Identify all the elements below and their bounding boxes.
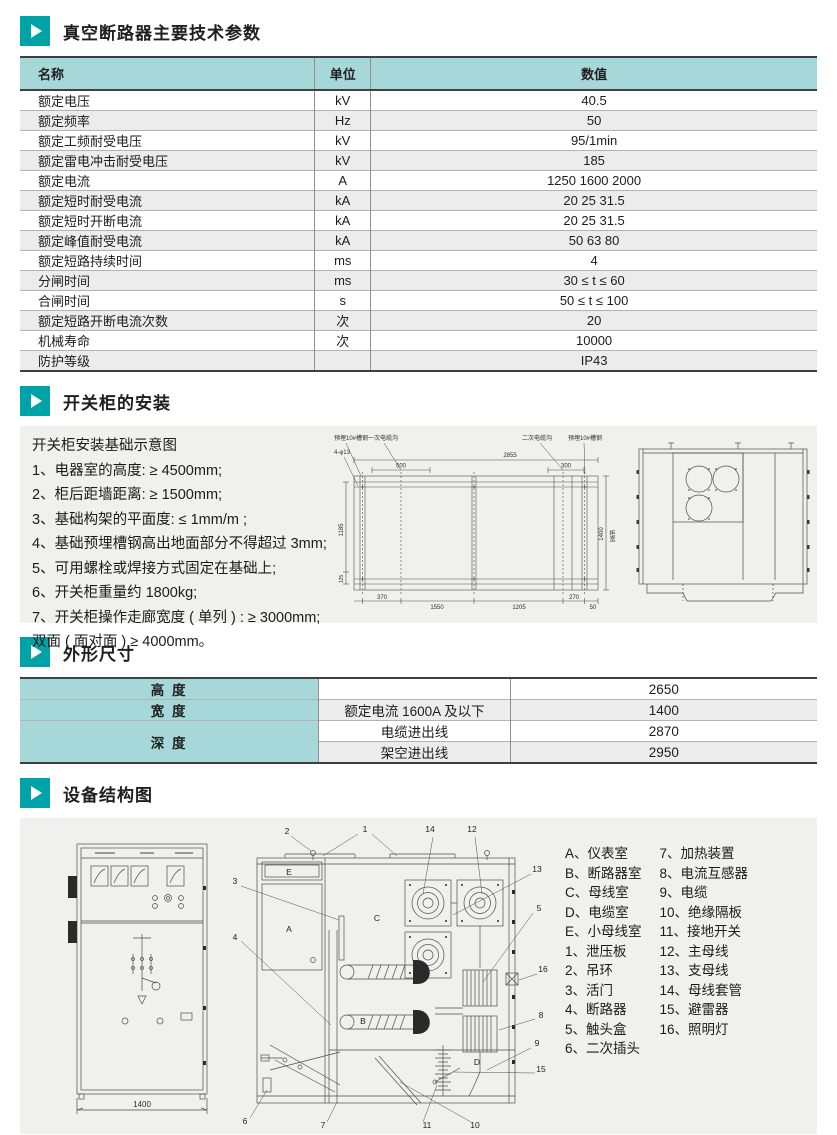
note-line: 双面 ( 面对面 ) ≥ 4000mm。: [32, 630, 332, 655]
callout-6: 6: [243, 1116, 248, 1126]
param-name: 额定短路开断电流次数: [20, 311, 315, 331]
table-row: 机械寿命次10000: [20, 331, 817, 351]
compartment-d-label: D: [474, 1057, 480, 1067]
legend-item: B、断路器室: [565, 864, 642, 884]
callout-13: 13: [532, 864, 542, 874]
legend-item: E、小母线室: [565, 922, 642, 942]
table-row: 额定峰值耐受电流kA50 63 80: [20, 231, 817, 251]
compartment-c-label: C: [374, 913, 380, 923]
section-header-params: 真空断路器主要技术参数: [20, 0, 817, 46]
params-table-body: 额定电压kV40.5额定频率Hz50额定工频耐受电压kV95/1min额定雷电冲…: [20, 90, 817, 371]
compartment-a-label: A: [286, 924, 292, 934]
legend-item: C、母线室: [565, 883, 642, 903]
plan-dim-b4: 270: [569, 595, 580, 601]
plan-dim-b5: 50: [590, 605, 597, 611]
plan-dim-primary: 500: [396, 464, 407, 470]
dim-width-label: 宽 度: [20, 700, 319, 721]
param-unit: ms: [315, 251, 371, 271]
callout-11: 11: [423, 1120, 432, 1130]
param-name: 防护等级: [20, 351, 315, 372]
table-row: 额定短路持续时间ms4: [20, 251, 817, 271]
note-line: 2、柜后距墙距离: ≥ 1500mm;: [32, 483, 332, 508]
dim-depth-cable-value: 2870: [510, 721, 817, 742]
plan-dim-left: 1185: [339, 523, 345, 537]
col-header-name: 名称: [20, 57, 315, 90]
plan-dim-b3: 1205: [512, 605, 526, 611]
param-unit: s: [315, 291, 371, 311]
param-value: 20: [371, 311, 817, 331]
param-name: 额定频率: [20, 111, 315, 131]
section-header-installation: 开关柜的安装: [20, 372, 817, 416]
dim-depth-cable-label: 电缆进出线: [319, 721, 510, 742]
note-line: 7、开关柜操作走廊宽度 ( 单列 ) : ≥ 3000mm;: [32, 606, 332, 631]
callout-16: 16: [538, 964, 548, 974]
param-name: 额定电流: [20, 171, 315, 191]
note-line: 1、电器室的高度: ≥ 4500mm;: [32, 459, 332, 484]
param-unit: kA: [315, 211, 371, 231]
installation-caption: 开关柜安装基础示意图: [32, 434, 332, 459]
legend-item: 6、二次插头: [565, 1039, 642, 1059]
param-name: 机械寿命: [20, 331, 315, 351]
param-value: 10000: [371, 331, 817, 351]
dim-width-qualifier: 额定电流 1600A 及以下: [319, 700, 510, 721]
section-title-installation: 开关柜的安装: [63, 389, 171, 414]
legend-item: 4、断路器: [565, 1000, 642, 1020]
table-row: 额定短时耐受电流kA20 25 31.5: [20, 191, 817, 211]
table-row: 额定电压kV40.5: [20, 90, 817, 111]
plan-label-channel-right: 预埋10#槽钢: [568, 434, 602, 442]
structure-panel: 1400: [20, 818, 817, 1134]
front-view-width-dim: 1400: [133, 1100, 151, 1109]
structure-legend: A、仪表室B、断路器室C、母线室D、电缆室E、小母线室1、泄压板2、吊环3、活门…: [565, 844, 748, 1059]
section-arrow-icon: [20, 778, 50, 808]
legend-item: 8、电流互感器: [660, 864, 749, 884]
param-value: 50 ≤ t ≤ 100: [371, 291, 817, 311]
plan-dim-left-small: 125: [339, 575, 345, 584]
dim-depth-label: 深 度: [20, 721, 319, 764]
param-unit: ms: [315, 271, 371, 291]
callout-4: 4: [233, 932, 238, 942]
callout-1: 1: [363, 824, 368, 834]
foundation-plan-diagram: 预埋10#槽钢 一次电缆沟 4-φ13 二次电缆沟 预埋10#槽钢 2855 5…: [332, 430, 617, 620]
table-row: 额定工频耐受电压kV95/1min: [20, 131, 817, 151]
col-header-value: 数值: [371, 57, 817, 90]
installation-notes: 开关柜安装基础示意图 1、电器室的高度: ≥ 4500mm;2、柜后距墙距离: …: [32, 434, 332, 655]
param-value: 30 ≤ t ≤ 60: [371, 271, 817, 291]
compartment-b-label: B: [360, 1016, 366, 1026]
cabinet-front-view-diagram: 1400: [55, 826, 230, 1126]
dim-width-value: 1400: [510, 700, 817, 721]
param-unit: kV: [315, 131, 371, 151]
param-value: 1250 1600 2000: [371, 171, 817, 191]
section-title-structure: 设备结构图: [63, 781, 153, 806]
param-name: 额定短时耐受电流: [20, 191, 315, 211]
dim-height-label: 高 度: [20, 678, 319, 700]
legend-item: 13、支母线: [660, 961, 749, 981]
section-arrow-icon: [20, 386, 50, 416]
legend-item: D、电缆室: [565, 903, 642, 923]
table-row: 防护等级IP43: [20, 351, 817, 372]
dim-height-value: 2650: [510, 678, 817, 700]
legend-col-2: 7、加热装置8、电流互感器9、电缆10、绝缘隔板11、接地开关12、主母线13、…: [660, 844, 749, 1059]
param-name: 分闸时间: [20, 271, 315, 291]
section-title-params: 真空断路器主要技术参数: [63, 19, 261, 44]
params-header-row: 名称 单位 数值: [20, 57, 817, 90]
param-value: 95/1min: [371, 131, 817, 151]
param-name: 合闸时间: [20, 291, 315, 311]
param-name: 额定电压: [20, 90, 315, 111]
section-header-structure: 设备结构图: [20, 764, 817, 808]
plan-label-cabinet-width: 柜宽: [608, 529, 615, 543]
table-row: 合闸时间s50 ≤ t ≤ 100: [20, 291, 817, 311]
legend-item: 16、照明灯: [660, 1020, 749, 1040]
callout-7: 7: [321, 1120, 326, 1130]
legend-item: 5、触头盒: [565, 1020, 642, 1040]
dim-depth-overhead-label: 架空进出线: [319, 742, 510, 764]
legend-item: 3、活门: [565, 981, 642, 1001]
play-triangle-icon: [31, 394, 42, 408]
table-row: 额定短路开断电流次数次20: [20, 311, 817, 331]
param-unit: A: [315, 171, 371, 191]
param-unit: [315, 351, 371, 372]
param-value: 50 63 80: [371, 231, 817, 251]
param-value: 40.5: [371, 90, 817, 111]
param-unit: kV: [315, 90, 371, 111]
table-row: 额定短时开断电流kA20 25 31.5: [20, 211, 817, 231]
legend-item: 11、接地开关: [660, 922, 749, 942]
param-name: 额定工频耐受电压: [20, 131, 315, 151]
plan-label-channel-left: 预埋10#槽钢: [334, 434, 368, 442]
param-unit: Hz: [315, 111, 371, 131]
param-unit: kA: [315, 191, 371, 211]
callout-15: 15: [536, 1064, 546, 1074]
play-triangle-icon: [31, 24, 42, 38]
plan-dim-b1: 370: [377, 595, 388, 601]
cabinet-top-view-diagram: [623, 432, 823, 620]
play-triangle-icon: [31, 786, 42, 800]
legend-item: 15、避雷器: [660, 1000, 749, 1020]
page: 真空断路器主要技术参数 名称 单位 数值 额定电压kV40.5额定频率Hz50额…: [0, 0, 837, 1134]
note-line: 3、基础构架的平面度: ≤ 1mm/m ;: [32, 508, 332, 533]
legend-item: 10、绝缘隔板: [660, 903, 749, 923]
param-unit: 次: [315, 331, 371, 351]
params-table: 名称 单位 数值 额定电压kV40.5额定频率Hz50额定工频耐受电压kV95/…: [20, 56, 817, 372]
table-row: 额定频率Hz50: [20, 111, 817, 131]
cabinet-section-view-diagram: 1 2 3 4 5 6 7 8 9 10 11 12 13 14 15 16 A…: [225, 820, 555, 1135]
table-row: 宽 度 额定电流 1600A 及以下 1400: [20, 700, 817, 721]
callout-2: 2: [285, 826, 290, 836]
legend-item: 14、母线套管: [660, 981, 749, 1001]
plan-label-secondary-trench: 二次电缆沟: [522, 434, 552, 442]
callout-14: 14: [425, 824, 435, 834]
callout-9: 9: [535, 1038, 540, 1048]
plan-label-primary-trench: 一次电缆沟: [368, 434, 398, 442]
param-unit: kA: [315, 231, 371, 251]
note-line: 6、开关柜重量约 1800kg;: [32, 581, 332, 606]
callout-10: 10: [470, 1120, 480, 1130]
callout-12: 12: [467, 824, 477, 834]
param-name: 额定峰值耐受电流: [20, 231, 315, 251]
legend-col-1: A、仪表室B、断路器室C、母线室D、电缆室E、小母线室1、泄压板2、吊环3、活门…: [565, 844, 642, 1059]
plan-dim-b2: 1550: [430, 605, 444, 611]
param-unit: 次: [315, 311, 371, 331]
callout-8: 8: [539, 1010, 544, 1020]
param-name: 额定短路持续时间: [20, 251, 315, 271]
plan-dim-total: 2855: [503, 453, 517, 459]
callout-5: 5: [537, 903, 542, 913]
legend-item: 12、主母线: [660, 942, 749, 962]
legend-item: A、仪表室: [565, 844, 642, 864]
installation-panel: 开关柜安装基础示意图 1、电器室的高度: ≥ 4500mm;2、柜后距墙距离: …: [20, 426, 817, 623]
dim-height-qualifier: [319, 678, 510, 700]
param-value: IP43: [371, 351, 817, 372]
table-row: 额定电流A1250 1600 2000: [20, 171, 817, 191]
table-row: 高 度 2650: [20, 678, 817, 700]
param-value: 185: [371, 151, 817, 171]
table-row: 分闸时间ms30 ≤ t ≤ 60: [20, 271, 817, 291]
plan-dim-secondary: 300: [561, 464, 572, 470]
table-row: 深 度 电缆进出线 2870: [20, 721, 817, 742]
legend-item: 9、电缆: [660, 883, 749, 903]
col-header-unit: 单位: [315, 57, 371, 90]
param-name: 额定雷电冲击耐受电压: [20, 151, 315, 171]
param-unit: kV: [315, 151, 371, 171]
compartment-e-label: E: [286, 867, 292, 877]
callout-3: 3: [233, 876, 238, 886]
note-line: 4、基础预埋槽钢高出地面部分不得超过 3mm;: [32, 532, 332, 557]
param-value: 50: [371, 111, 817, 131]
note-line: 5、可用螺栓或焊接方式固定在基础上;: [32, 557, 332, 582]
legend-item: 7、加热装置: [660, 844, 749, 864]
param-value: 4: [371, 251, 817, 271]
legend-item: 2、吊环: [565, 961, 642, 981]
section-arrow-icon: [20, 16, 50, 46]
dim-depth-overhead-value: 2950: [510, 742, 817, 764]
legend-item: 1、泄压板: [565, 942, 642, 962]
table-row: 额定雷电冲击耐受电压kV185: [20, 151, 817, 171]
plan-label-holes: 4-φ13: [334, 450, 351, 456]
param-value: 20 25 31.5: [371, 191, 817, 211]
param-value: 20 25 31.5: [371, 211, 817, 231]
dimensions-table: 高 度 2650 宽 度 额定电流 1600A 及以下 1400 深 度 电缆进…: [20, 677, 817, 764]
plan-dim-right: 1400: [599, 527, 605, 541]
param-name: 额定短时开断电流: [20, 211, 315, 231]
